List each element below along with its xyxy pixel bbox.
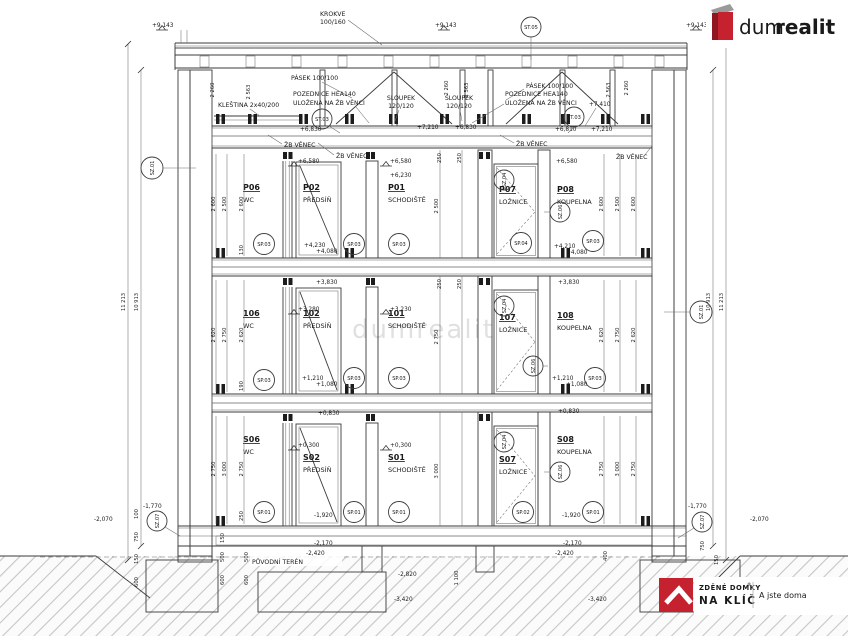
annotation: ŽB VĚNEC — [616, 152, 647, 161]
dim-text: 250 — [457, 153, 463, 163]
level-text: -2,820 — [398, 572, 417, 578]
room-name: PŘEDSÍŇ — [303, 465, 332, 474]
dim-text: 2 750 — [222, 328, 228, 343]
level-text: +1,080 — [566, 382, 588, 388]
dim-text: 2 600 — [239, 197, 245, 212]
dim-text: 2 563 — [246, 85, 252, 100]
roof-insulation — [175, 55, 687, 68]
mark-sp03: SP.03 — [586, 239, 600, 245]
logo-text-red: realit — [775, 15, 836, 39]
mark-sp01: SP.01 — [257, 510, 271, 516]
left-wall-insulation — [178, 70, 190, 556]
level-text: +3,280 — [298, 307, 320, 313]
svg-text:ST.03: ST.03 — [567, 115, 581, 121]
mark-sp03: SP.03 — [257, 378, 271, 384]
post — [488, 70, 493, 126]
dim-text: 2 750 — [615, 328, 621, 343]
svg-text:SZ.07: SZ.07 — [155, 514, 161, 529]
dim-text: 500 — [220, 552, 226, 562]
level-text: +4,080 — [566, 250, 588, 256]
dim-text: 3 000 — [434, 464, 440, 479]
annotation: KLEŠTINA 2x40/200 — [218, 100, 279, 109]
mark-sp01: SP.01 — [347, 510, 361, 516]
logo-tagline: A jste doma — [759, 591, 807, 600]
roof — [175, 30, 687, 70]
dim-text: 2 600 — [631, 197, 637, 212]
svg-text:SZ.04: SZ.04 — [502, 299, 508, 314]
dim-text: 150 — [134, 554, 140, 564]
level-text: -1,920 — [314, 513, 333, 519]
room-name: SCHODIŠTĚ — [388, 195, 426, 204]
room-name: KOUPELNA — [557, 324, 592, 332]
dim-text: 3 000 — [615, 462, 621, 477]
level-text: +7,210 — [591, 127, 613, 133]
dim-text: 2 750 — [239, 462, 245, 477]
dim-text: 190 — [239, 381, 245, 391]
dim-text: 150 — [220, 533, 226, 543]
logo-building-side — [712, 13, 718, 40]
level-text: -2,170 — [563, 541, 582, 547]
level-text: +7,410 — [589, 102, 611, 108]
annotation: ULOŽENA NA ŽB VĚNCI — [505, 98, 577, 107]
mark-sp01: SP.01 — [392, 510, 406, 516]
mark-sz04: SZ.04 — [494, 170, 514, 190]
mark-sp03: SP.03 — [392, 376, 406, 382]
room-name: LOŽNICE — [499, 197, 527, 206]
slab-2 — [212, 384, 652, 412]
dim-text: 250 — [457, 279, 463, 289]
roof-sheathing — [175, 48, 687, 55]
dim-text: 2 620 — [211, 328, 217, 343]
dim-text: 2 563 — [464, 83, 470, 98]
terrain-label: PŮVODNÍ TERÉN — [252, 557, 303, 566]
annotation: ŽB VĚNEC — [284, 140, 315, 149]
level-text: -1,920 — [562, 513, 581, 519]
svg-text:SZ.04: SZ.04 — [502, 435, 508, 450]
dim-text: 2 600 — [211, 197, 217, 212]
dim-text: 2 750 — [631, 462, 637, 477]
mark-sp01: SP.01 — [586, 510, 600, 516]
annotation: 120/120 — [446, 103, 472, 110]
annotation: SLOUPEK — [387, 95, 416, 102]
dim-text: 100 — [134, 509, 140, 519]
rafter-cuts — [200, 56, 664, 67]
watermark: dumrealit — [352, 315, 495, 345]
level-text: +6,830 — [455, 125, 477, 131]
dim-text: 250 — [437, 153, 443, 163]
svg-text:SZ.01: SZ.01 — [150, 161, 156, 176]
dim-text: 3 000 — [222, 462, 228, 477]
dim-text: 2 750 — [599, 462, 605, 477]
annotation: ULOŽENA NA ŽB VĚNCI — [293, 98, 365, 107]
level-text: +3,230 — [390, 307, 412, 313]
dim-text: 2 620 — [239, 328, 245, 343]
dim-text: 250 — [239, 511, 245, 521]
svg-text:ST.05: ST.05 — [524, 25, 538, 31]
interior-wall — [538, 276, 550, 394]
annotation: 120/120 — [388, 103, 414, 110]
level-text: -3,420 — [588, 597, 607, 603]
logo-line1: ZDĚNÉ DOMKY — [699, 583, 761, 592]
logo-dumrealit: dum realit — [706, 0, 848, 48]
level-text: -2,420 — [555, 551, 574, 557]
level-text: +0,300 — [390, 443, 412, 449]
level-text: -2,070 — [94, 517, 113, 523]
mark-sz01: SZ.01 — [664, 301, 712, 323]
room-number: S06 — [243, 435, 260, 444]
annotation: POZEDNICE HEA140 — [505, 91, 568, 98]
room-name: LOŽNICE — [499, 325, 527, 334]
mark-sp02: SP.02 — [516, 510, 530, 516]
dim-text: 11 213 — [121, 293, 127, 311]
mark-sz04: SZ.04 — [494, 432, 514, 452]
room-name: LOŽNICE — [499, 467, 527, 476]
section-drawing: PŮVODNÍ TERÉN — [0, 0, 848, 636]
room-name: WC — [243, 448, 254, 456]
svg-text:SZ.06: SZ.06 — [558, 205, 564, 220]
dim-text: 2 563 — [606, 83, 612, 98]
interior-wall — [538, 150, 550, 258]
dim-text: 750 — [700, 541, 706, 551]
level-text: -3,420 — [394, 597, 413, 603]
dim-text: 10 913 — [134, 293, 140, 311]
dim-text: 2 500 — [222, 197, 228, 212]
room-number: P01 — [388, 183, 405, 192]
level-text: +6,580 — [390, 159, 412, 165]
dim-text: 2 620 — [631, 328, 637, 343]
dim-text: 150 — [714, 555, 720, 565]
mark-sp03: SP.03 — [392, 242, 406, 248]
svg-text:SZ.06: SZ.06 — [558, 465, 564, 480]
mark-sz07: SZ.07 — [678, 512, 712, 538]
annotation: ŽB VĚNEC — [516, 139, 547, 148]
dim-text: 2 260 — [444, 81, 450, 96]
level-text: +4,080 — [316, 249, 338, 255]
room-number: S02 — [303, 453, 320, 462]
svg-text:SZ.06: SZ.06 — [531, 359, 537, 374]
dim-text: 600 — [134, 577, 140, 587]
annotation: POZEDNICE HEA140 — [293, 91, 356, 98]
mark-sz06: SZ.06 — [523, 356, 548, 376]
interior-wall — [538, 412, 550, 526]
logo-zdene-domky: ZDĚNÉ DOMKY ® NA KLÍČ A jste doma — [659, 577, 848, 615]
room-name: SCHODIŠTĚ — [388, 465, 426, 474]
level-text: +9,143 — [152, 23, 174, 29]
stair-wall — [366, 423, 378, 526]
room-number: 108 — [557, 311, 574, 320]
svg-text:SZ.01: SZ.01 — [699, 305, 705, 320]
room-number: 106 — [243, 309, 260, 318]
mark-sp03: SP.03 — [257, 242, 271, 248]
interior-wall — [478, 412, 492, 526]
level-text: +6,580 — [556, 159, 578, 165]
attic-structure — [214, 70, 650, 126]
svg-text:ST.03: ST.03 — [315, 117, 329, 123]
right-wall-insulation — [674, 70, 686, 556]
dim-text: 2 500 — [434, 199, 440, 214]
mark-sz01: SZ.01 — [141, 157, 196, 179]
annotation: PÁSEK 100/100 — [291, 73, 338, 82]
annotation: PÁSEK 100/100 — [526, 81, 573, 90]
level-text: +0,830 — [558, 409, 580, 415]
svg-text:SZ.07: SZ.07 — [700, 515, 706, 530]
room-number: S07 — [499, 455, 516, 464]
room-name: PŘEDSÍŇ — [303, 195, 332, 204]
right-wall-masonry — [652, 70, 674, 556]
level-text: +0,300 — [298, 443, 320, 449]
svg-text:SZ.04: SZ.04 — [502, 173, 508, 188]
dim-text: 750 — [134, 532, 140, 542]
dim-text: 1 100 — [454, 571, 460, 586]
dim-text: 400 — [603, 551, 609, 561]
mark-st05: ST.05 — [521, 17, 541, 60]
room-number: S08 — [557, 435, 574, 444]
dim-text: 2 260 — [210, 83, 216, 98]
dim-text: 2 620 — [599, 328, 605, 343]
level-text: -2,170 — [314, 541, 333, 547]
interior-wall — [478, 150, 492, 258]
room-number: P08 — [557, 185, 574, 194]
dim-text: 250 — [437, 279, 443, 289]
dim-text: 2 750 — [211, 462, 217, 477]
level-text: +7,210 — [417, 125, 439, 131]
level-text: +9,143 — [686, 23, 708, 29]
dim-text: 600 — [220, 575, 226, 585]
level-text: -2,070 — [750, 517, 769, 523]
dim-text: 130 — [239, 245, 245, 255]
annotation: KROKVE — [320, 11, 346, 18]
door-loznice — [494, 290, 538, 394]
mark-sp03: SP.03 — [588, 376, 602, 382]
mark-sp03: SP.03 — [347, 376, 361, 382]
room-number: S01 — [388, 453, 405, 462]
logo-reg: ® — [747, 581, 752, 588]
level-text: -1,770 — [143, 504, 162, 510]
room-number: P06 — [243, 183, 260, 192]
level-text: +3,830 — [316, 280, 338, 286]
level-text: +1,080 — [316, 382, 338, 388]
level-text: +3,830 — [558, 280, 580, 286]
annotation: ŽB VĚNEC — [336, 151, 367, 160]
room-name: KOUPELNA — [557, 448, 592, 456]
level-text: -2,420 — [306, 551, 325, 557]
annotation: 100/160 — [320, 19, 346, 26]
level-text: -1,770 — [688, 504, 707, 510]
left-wall-masonry — [190, 70, 212, 556]
dim-text: 11 213 — [719, 293, 725, 311]
dim-text: 2 600 — [599, 197, 605, 212]
level-text: +6,810 — [555, 127, 577, 133]
mark-sz04: SZ.04 — [494, 296, 514, 316]
mark-sp03: SP.03 — [347, 242, 361, 248]
brace — [506, 72, 562, 124]
brace — [336, 72, 394, 124]
wallplate-cuts — [216, 114, 650, 124]
stair-wall — [366, 161, 378, 258]
logo-building-front — [718, 12, 733, 40]
room-name: PŘEDSÍŇ — [303, 321, 332, 330]
mark-sp04: SP.04 — [514, 241, 528, 247]
elevation-marks: +9,143 +9,143 +9,143 +6,830 +7,210 +6,83… — [94, 23, 769, 603]
level-text: +6,580 — [298, 159, 320, 165]
annotation-labels: KROKVE 100/160 PÁSEK 100/100 PÁSEK 100/1… — [218, 11, 652, 161]
level-text: +6,230 — [390, 173, 412, 179]
dim-text: 500 — [244, 552, 250, 562]
dim-text: 2 500 — [615, 197, 621, 212]
room-number: P02 — [303, 183, 320, 192]
mark-sz07: SZ.07 — [147, 511, 180, 536]
mark-sz06: SZ.06 — [544, 462, 570, 482]
dim-text: 2 260 — [624, 81, 630, 96]
logo-line2: NA KLÍČ — [699, 594, 757, 607]
level-text: +0,830 — [318, 411, 340, 417]
dim-text: 600 — [244, 575, 250, 585]
